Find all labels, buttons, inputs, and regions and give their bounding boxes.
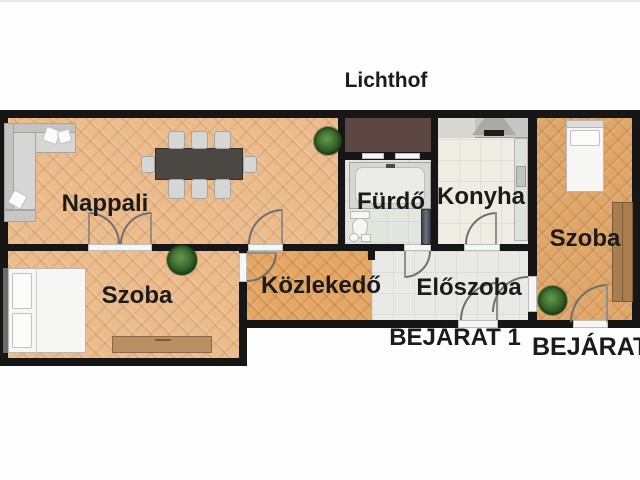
dining-chair [191, 131, 208, 149]
dining-chair [191, 179, 208, 199]
kitchen-counter-left [438, 118, 475, 138]
door-leaf [247, 252, 277, 254]
wall-bottom-right-b [608, 320, 640, 328]
shaft-vent-window [362, 153, 384, 159]
wall-right [632, 110, 640, 328]
door-leaf [404, 251, 406, 278]
sofa-armrest [4, 210, 36, 222]
dining-chair [141, 156, 155, 173]
room-label-szoba-right: Szoba [550, 225, 621, 253]
wall-nappali-bottom-a [8, 244, 88, 251]
dining-chair [214, 131, 231, 149]
bed-fold-line [36, 269, 37, 352]
wall-top [0, 110, 640, 118]
bed-pillow [12, 273, 32, 309]
wall-eloszoba-szoba-b [528, 312, 537, 328]
door-threshold [464, 244, 500, 251]
dining-chair [168, 131, 185, 149]
potted-plant [167, 245, 197, 275]
dining-chair [243, 156, 257, 173]
room-label-konyha: Konyha [437, 183, 525, 211]
top-border-line [0, 0, 640, 2]
room-label-furdo: Fürdő [357, 188, 425, 216]
door-threshold [248, 244, 283, 251]
wall-szoba-kozlekedo-b [239, 282, 247, 366]
wall-bottom-right-a [537, 320, 573, 328]
bed-pillow [570, 130, 600, 146]
floor-plan: Lichthof Nappali Fürdő Konyha Szoba Szob… [0, 0, 640, 480]
door-leaf [606, 284, 608, 322]
potted-plant [314, 127, 342, 155]
room-label-nappali: Nappali [62, 190, 149, 218]
bed-headboard [566, 120, 604, 128]
wall-bottom-left-room [0, 358, 247, 366]
bathroom-fixture [361, 234, 371, 242]
entrance-label-bejarat1: BEJÁRAT 1 [389, 324, 521, 352]
dining-chair [168, 179, 185, 199]
wall-kozlekedo-eloszoba-stub [368, 244, 375, 260]
sideboard-handle [155, 339, 171, 341]
room-label-kozlekedo: Közlekedő [261, 272, 381, 300]
wall-eloszoba-szoba-a [528, 244, 537, 276]
cooktop [484, 130, 504, 136]
wall-shaft-bottom [338, 152, 438, 160]
bed-pillow [12, 313, 32, 348]
room-label-eloszoba: Előszoba [416, 274, 521, 302]
door-leaf [150, 212, 152, 244]
wall-nappali-bottom-b [152, 244, 248, 251]
room-label-szoba-left: Szoba [102, 282, 173, 310]
potted-plant [538, 286, 567, 315]
door-threshold [528, 276, 537, 312]
wall-kitchen-szoba [528, 118, 537, 251]
door-threshold [88, 244, 152, 251]
lichthof-label: Lichthof [345, 69, 428, 93]
dining-table [155, 148, 243, 180]
door-threshold [404, 244, 431, 251]
bathtub-faucet [386, 164, 395, 168]
wardrobe-divider [622, 202, 623, 302]
bathroom-fixture [349, 233, 359, 242]
door-leaf [495, 212, 497, 244]
door-leaf [281, 209, 283, 244]
shaft-vent-window [395, 153, 420, 159]
entrance-label-bejarat2: BEJÁRAT 2 [532, 333, 640, 362]
door-threshold [239, 253, 247, 282]
dining-chair [214, 179, 231, 199]
